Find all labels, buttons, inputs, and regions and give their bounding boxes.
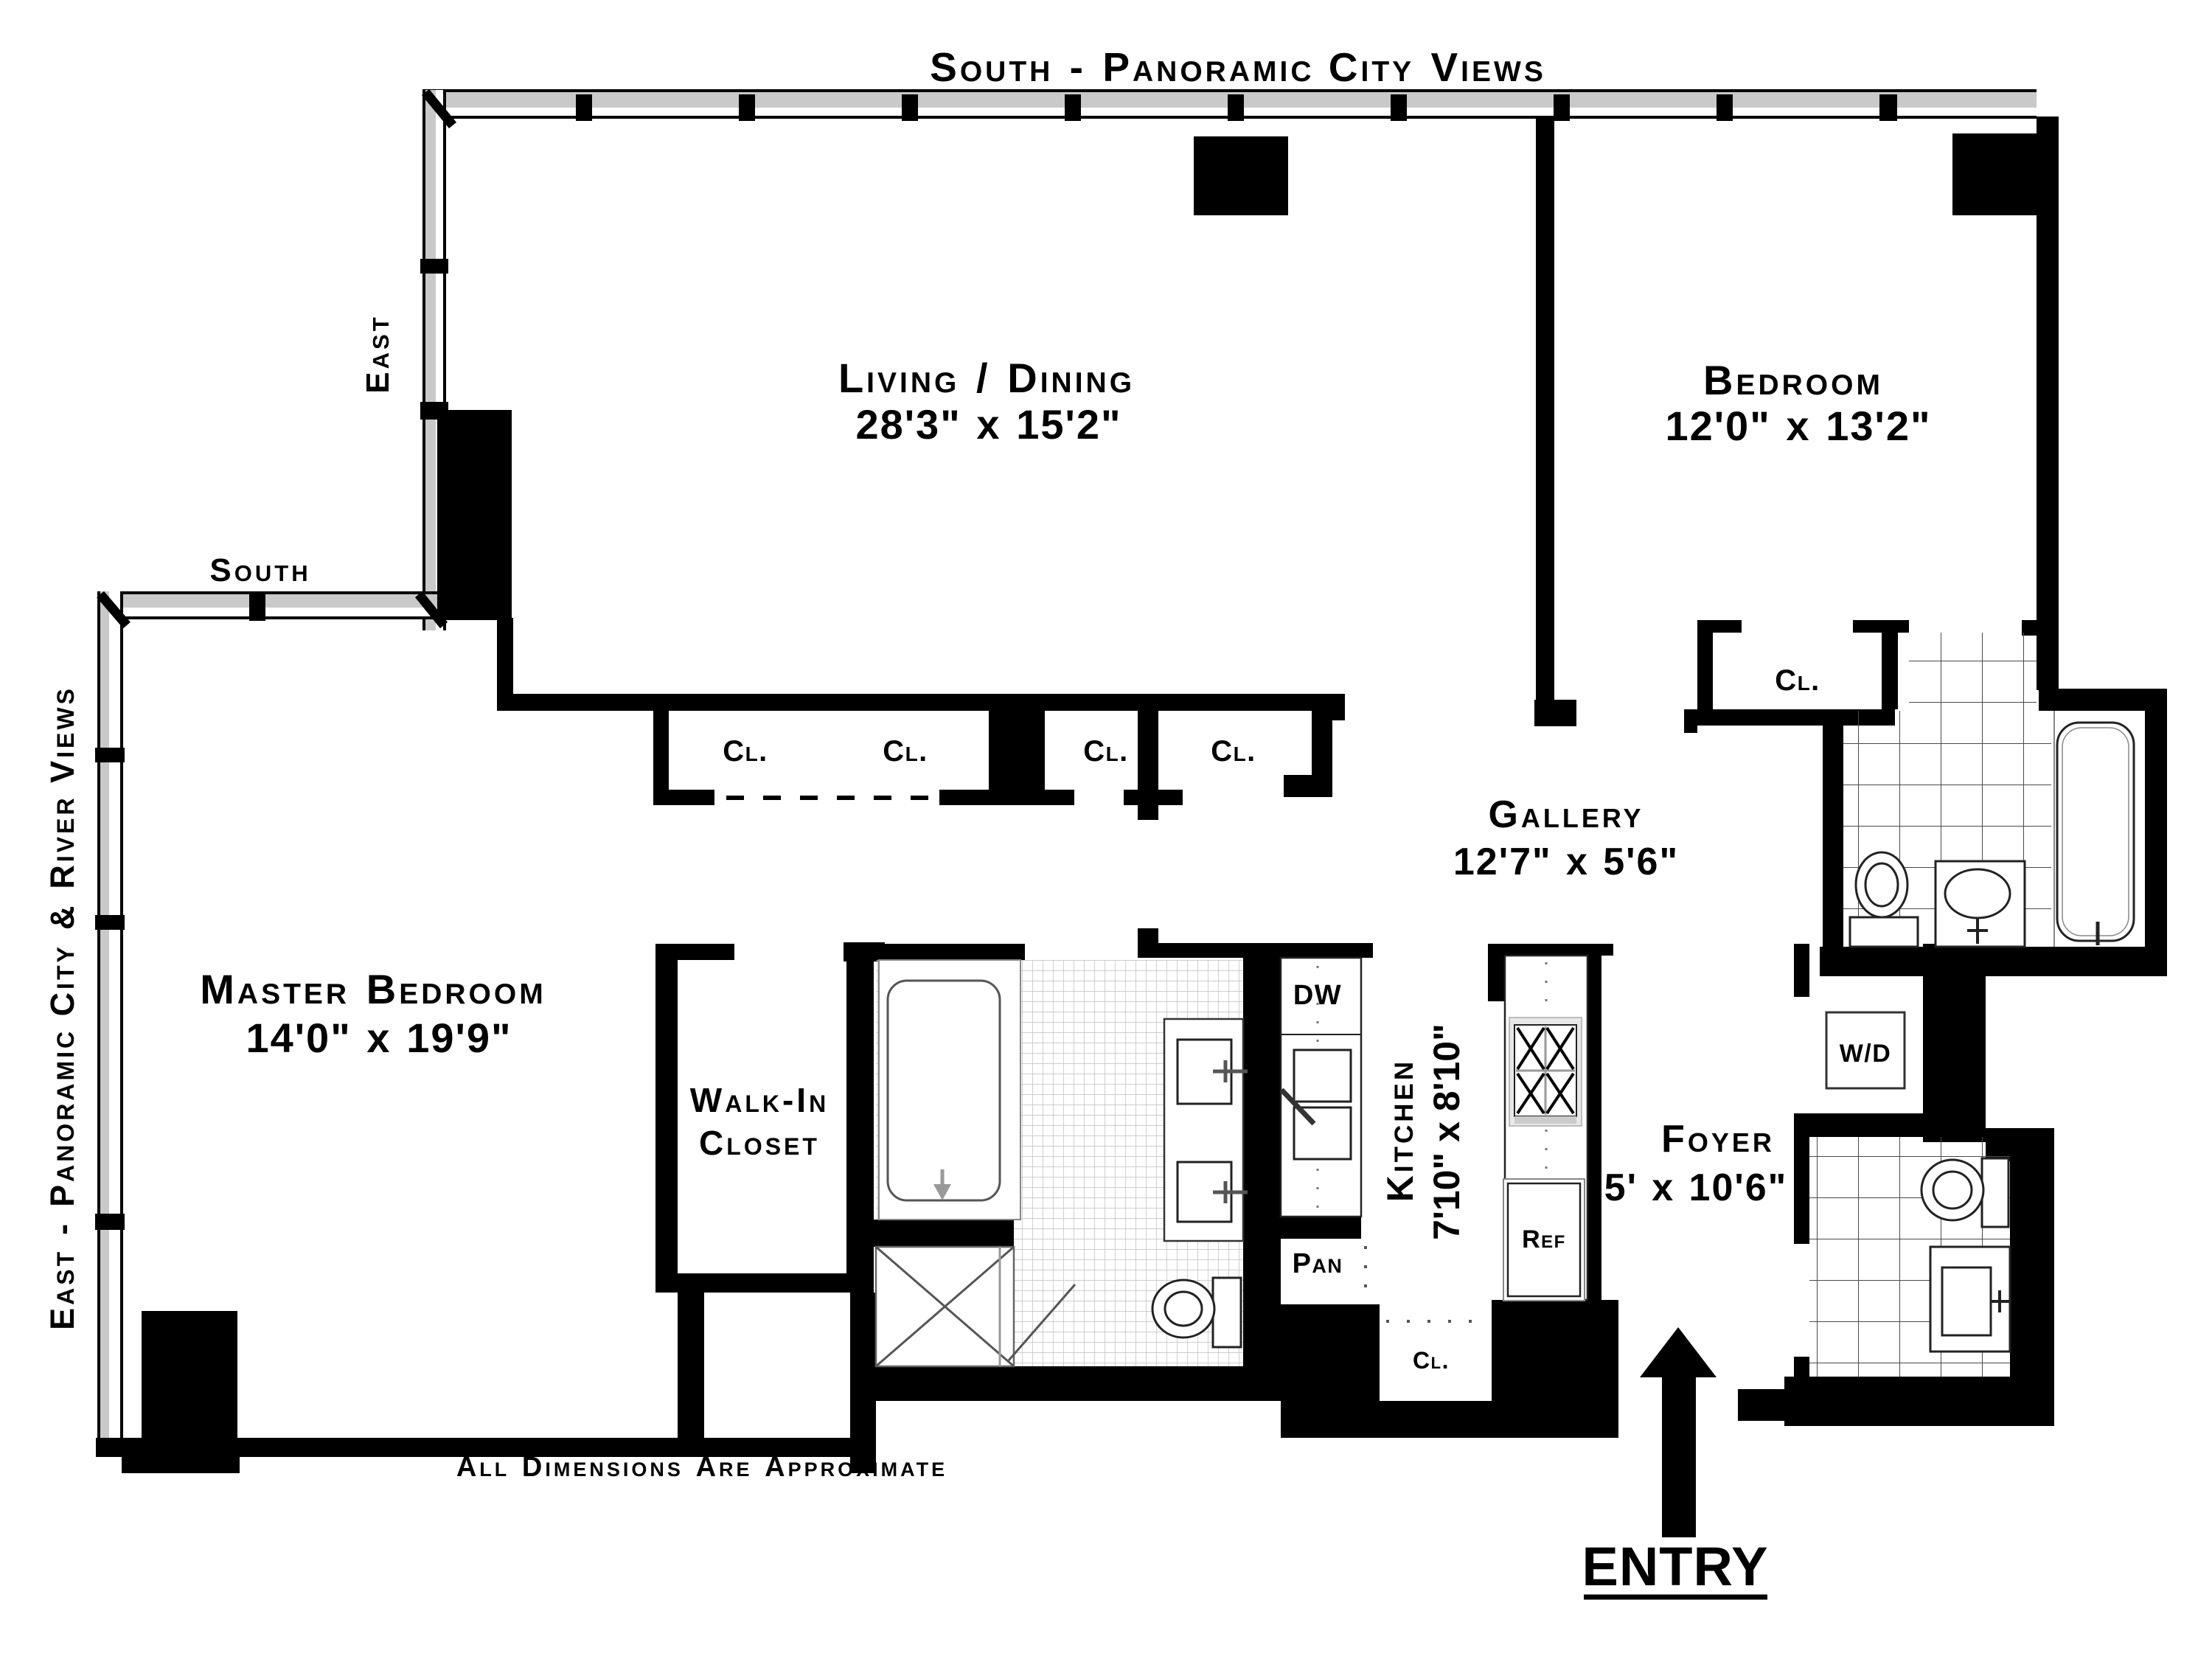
svg-text:Cl.: Cl. [723, 735, 768, 768]
svg-text:Cl.: Cl. [883, 735, 928, 768]
svg-text:Kitchen: Kitchen [1380, 1059, 1421, 1202]
svg-text:East - Panoramic City & River: East - Panoramic City & River Views [44, 686, 81, 1330]
svg-text:DW: DW [1293, 980, 1342, 1011]
svg-text:Pan: Pan [1293, 1248, 1343, 1279]
svg-text:12'7" x 5'6": 12'7" x 5'6" [1453, 841, 1679, 883]
svg-text:Cl.: Cl. [1413, 1347, 1450, 1374]
svg-text:Master Bedroom: Master Bedroom [200, 966, 546, 1012]
svg-text:12'0" x 13'2": 12'0" x 13'2" [1665, 403, 1931, 449]
svg-text:Cl.: Cl. [1775, 664, 1820, 697]
svg-text:South: South [209, 552, 310, 588]
svg-text:East: East [360, 314, 396, 393]
svg-text:Living / Dining: Living / Dining [838, 355, 1135, 401]
svg-text:7'10" x 8'10": 7'10" x 8'10" [1426, 1023, 1467, 1240]
svg-text:ENTRY: ENTRY [1582, 1536, 1768, 1597]
svg-text:South - Panoramic City Views: South - Panoramic City Views [930, 44, 1546, 90]
svg-text:W/D: W/D [1840, 1040, 1892, 1068]
svg-text:Bedroom: Bedroom [1703, 357, 1883, 403]
svg-text:Foyer: Foyer [1661, 1118, 1775, 1161]
svg-text:Cl.: Cl. [1083, 735, 1129, 768]
svg-text:Closet: Closet [699, 1124, 820, 1162]
svg-text:Gallery: Gallery [1488, 793, 1644, 836]
svg-text:Walk-In: Walk-In [690, 1081, 829, 1119]
svg-text:Cl.: Cl. [1211, 735, 1256, 768]
svg-text:Ref: Ref [1522, 1225, 1566, 1253]
svg-text:All Dimensions Are Approximate: All Dimensions Are Approximate [456, 1452, 947, 1483]
svg-text:28'3" x 15'2": 28'3" x 15'2" [855, 401, 1121, 448]
svg-text:14'0" x 19'9": 14'0" x 19'9" [246, 1015, 512, 1061]
svg-text:5' x 10'6": 5' x 10'6" [1604, 1166, 1788, 1209]
